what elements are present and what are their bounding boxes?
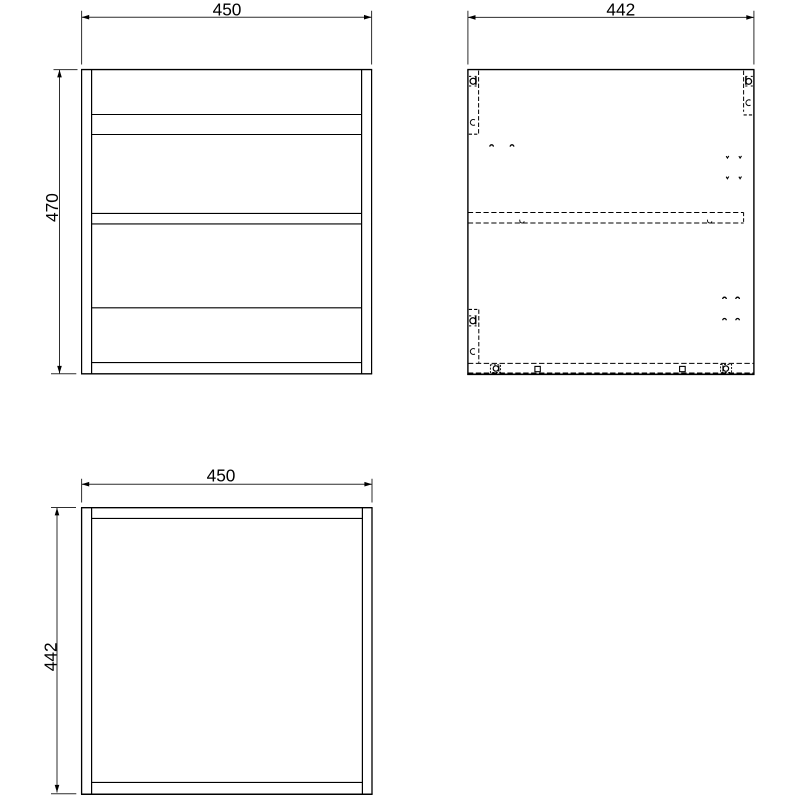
svg-text:470: 470 bbox=[42, 193, 62, 222]
svg-text:450: 450 bbox=[213, 0, 242, 20]
svg-text:442: 442 bbox=[41, 642, 61, 671]
svg-text:450: 450 bbox=[207, 466, 236, 486]
svg-text:442: 442 bbox=[606, 0, 635, 19]
